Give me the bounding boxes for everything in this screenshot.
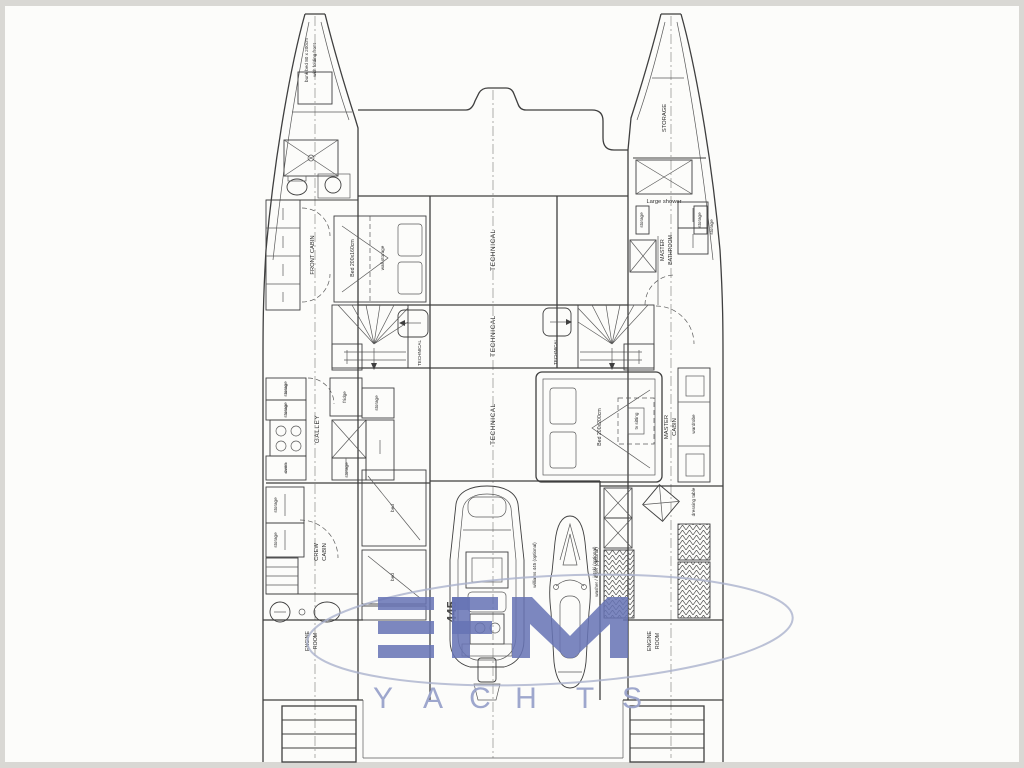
wardrobe-label: wardrobe	[691, 414, 696, 434]
technical-label-1: TECHNICAL	[490, 229, 497, 271]
bow-locker	[468, 497, 506, 517]
floorplan-canvas: bunk bed 80 x 200cm with folding front F…	[0, 0, 1024, 768]
master-bathroom-label-2: BATHROOM	[668, 235, 674, 265]
pillow-icon	[398, 224, 422, 256]
galley-fridge-label: fridge	[342, 391, 347, 403]
brand-letter-a: A	[423, 682, 443, 715]
brand-letter-t: T	[576, 682, 594, 715]
front-bed-note-label: wall storage	[380, 245, 385, 270]
port-engine-room: ENGINE ROOM	[282, 631, 356, 762]
port-bow-bathroom	[266, 140, 358, 200]
port-bunk-label-2: with folding front	[312, 43, 317, 77]
crew-bed-label-2: bed	[390, 573, 395, 581]
brand-letter-y: Y	[373, 682, 393, 715]
port-bow-bunk: bunk bed 80 x 200cm with folding front	[292, 38, 352, 112]
tender-optional-label: williams 445 (optional)	[532, 542, 537, 588]
front-bed-size-label: Bed 200x160cm	[350, 239, 356, 277]
tender-dinghy: 445 williams 445 (optional)	[444, 486, 537, 700]
front-cabin-label: FRONT CABIN	[310, 235, 316, 274]
bow-locker-label-1: storage	[639, 212, 644, 228]
pillow-icon	[550, 432, 576, 468]
front-cabin: FRONT CABIN Bed 200x160cm wall storage	[266, 200, 426, 310]
stove-icon	[270, 420, 306, 456]
crew-cabin-label-1: CREW	[314, 543, 320, 561]
technical-label-3: TECHNICAL	[490, 403, 497, 445]
brand-mark-icon	[378, 597, 628, 658]
brand-letter-c: C	[469, 682, 491, 715]
toilet-icon	[287, 179, 307, 195]
crew-cabin-label-2: CABIN	[322, 543, 328, 561]
bow-locker-label-2: storage	[697, 212, 702, 228]
galley-storage-label-2: storage	[283, 402, 288, 418]
port-engine-label-2: ROOM	[313, 633, 319, 649]
sink-icon	[325, 177, 341, 193]
technical-small-label-stbd: TECHNICAL	[553, 339, 558, 365]
galley-storage-label-4: storage	[344, 462, 349, 478]
dressing-table-label: dressing table	[691, 487, 696, 516]
technical-rooms: TECHNICAL TECHNICAL TECHNICAL	[490, 229, 497, 445]
master-cabin-label-1: MASTER	[664, 415, 670, 439]
galley: GALLEY storage storage oven fridge stora…	[266, 378, 394, 480]
port-bunk-label-1: bunk bed 80 x 200cm	[304, 38, 309, 82]
large-shower-label: Large shower	[646, 199, 681, 205]
handlebar-icon	[556, 580, 584, 586]
starboard-hull-outline	[628, 14, 723, 762]
hanging-locker	[678, 524, 710, 560]
master-bathroom-label-1: MASTER	[660, 239, 666, 261]
master-cabin: Bed 200x200cm tv sitting MASTER CABIN wa…	[536, 368, 710, 482]
master-bath-storage-label: storage	[709, 219, 714, 235]
brand-letter-s: S	[622, 682, 642, 715]
galley-storage-label-3: storage	[374, 395, 379, 411]
master-cabin-label-2: CABIN	[672, 418, 678, 436]
hanging-locker	[678, 562, 710, 618]
stbd-engine-label-2: ROOM	[655, 633, 661, 649]
brand-letter-h: H	[515, 682, 537, 715]
galley-storage-label-1: storage	[283, 381, 288, 397]
technical-small-label-port: TECHNICAL	[417, 340, 422, 366]
stbd-engine-label-1: ENGINE	[647, 631, 653, 651]
crew-storage-label-1: storage	[273, 497, 278, 513]
port-staircase: TECHNICAL	[332, 305, 428, 370]
master-bed-size-label: Bed 200x200cm	[597, 408, 603, 446]
tv-sitting-label: tv sitting	[634, 412, 639, 429]
crew-bed-label-1: bed	[390, 504, 395, 512]
jetski: jetski (optional)	[550, 516, 597, 688]
galley-label: GALLEY	[314, 415, 321, 444]
starboard-bow: STORAGE Large shower storage storage	[633, 78, 707, 234]
yacht-floorplan-page: bunk bed 80 x 200cm with folding front F…	[0, 0, 1024, 768]
crew-storage-label-2: storage	[273, 532, 278, 548]
pillow-icon	[550, 388, 576, 424]
technical-label-2: TECHNICAL	[490, 315, 497, 357]
bow-storage-label: STORAGE	[662, 104, 668, 132]
pillow-icon	[398, 262, 422, 294]
galley-oven-label: oven	[283, 463, 288, 473]
